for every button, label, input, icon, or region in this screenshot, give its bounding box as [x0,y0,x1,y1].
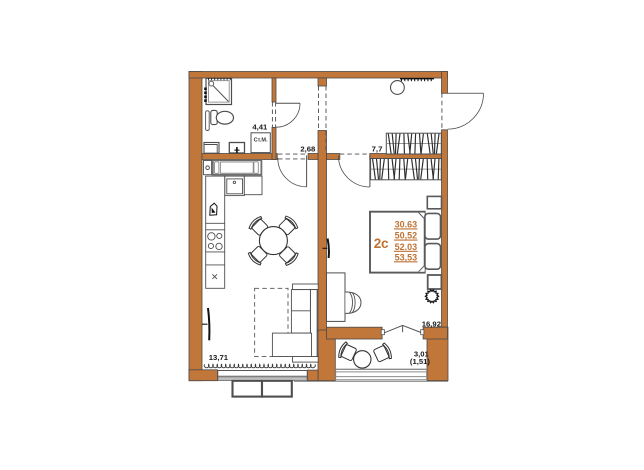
svg-text:Ст.М.: Ст.М. [254,138,269,144]
svg-text:2,68: 2,68 [300,144,316,153]
svg-text:7,7: 7,7 [372,145,383,154]
svg-text:50,52: 50,52 [395,231,418,241]
svg-text:52.03: 52.03 [395,242,418,252]
svg-text:53,53: 53,53 [395,252,418,262]
svg-text:30.63: 30.63 [395,219,418,229]
svg-text:4,41: 4,41 [252,122,268,131]
svg-text:16,92: 16,92 [422,320,441,329]
svg-text:2с: 2с [374,236,389,251]
svg-text:(1,51): (1,51) [410,357,431,366]
svg-text:13,71: 13,71 [209,353,229,362]
